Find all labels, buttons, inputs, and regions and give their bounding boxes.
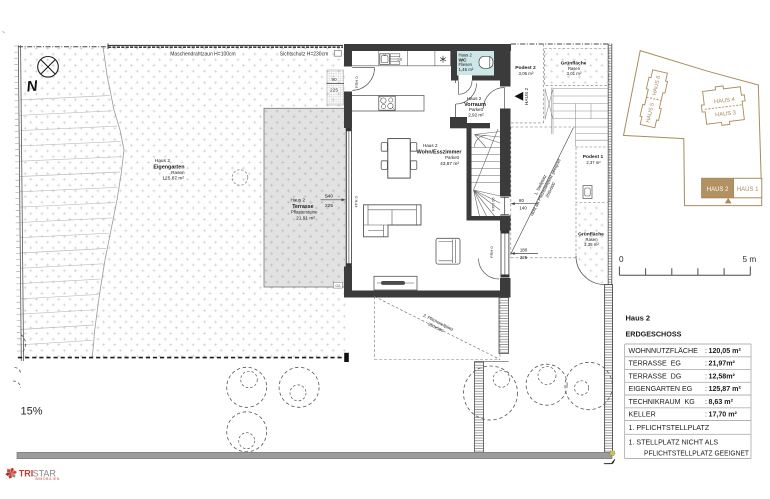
svg-text:2,37 m²: 2,37 m² [586, 160, 601, 165]
svg-text:Haus 2: Haus 2 [155, 158, 171, 164]
svg-text:15%: 15% [21, 405, 43, 417]
svg-text:120,05 m²: 120,05 m² [709, 347, 742, 355]
svg-text:Pflastersteine: Pflastersteine [291, 210, 318, 215]
svg-text::: : [705, 360, 707, 368]
svg-text:225: 225 [520, 255, 528, 260]
svg-text:90: 90 [331, 77, 337, 83]
svg-text:FRH 0: FRH 0 [354, 76, 359, 88]
svg-text:3,35 m²: 3,35 m² [584, 242, 599, 247]
svg-text:2,92 m²: 2,92 m² [468, 113, 484, 118]
svg-text:HAUS 1: HAUS 1 [737, 187, 759, 193]
svg-text:Rasen: Rasen [171, 170, 185, 175]
svg-text:5 m: 5 m [743, 255, 757, 264]
svg-text:180: 180 [520, 248, 528, 253]
svg-text:TERRASSE EG: TERRASSE EG [629, 360, 681, 368]
svg-text:0: 0 [619, 255, 624, 264]
svg-text:Maschendrahtzaun H=100cm: Maschendrahtzaun H=100cm [170, 51, 235, 57]
svg-text:1. STELLPLATZ NICHT ALS: 1. STELLPLATZ NICHT ALS [629, 439, 719, 447]
svg-text::: : [705, 411, 707, 419]
svg-text:WOHNNUTZFLÄCHE: WOHNNUTZFLÄCHE [629, 347, 699, 355]
svg-text:Parkett: Parkett [469, 107, 484, 112]
svg-text:FRH 0: FRH 0 [489, 246, 494, 258]
svg-text:43,87 m²: 43,87 m² [440, 161, 459, 167]
svg-text:12,58m²: 12,58m² [709, 372, 736, 380]
svg-text:IMMOBILIEN: IMMOBILIEN [35, 477, 60, 481]
svg-text:125,87 m²: 125,87 m² [709, 385, 742, 393]
svg-text:TRI: TRI [19, 469, 34, 479]
svg-text:EIGENGARTEN EG: EIGENGARTEN EG [629, 385, 693, 393]
svg-text::: : [705, 347, 707, 355]
svg-text:Haus 2: Haus 2 [459, 52, 473, 57]
svg-text:Sichtschutz H=230cm: Sichtschutz H=230cm [280, 51, 329, 57]
svg-text:Haus 2: Haus 2 [626, 313, 651, 322]
svg-text:ERDGESCHOSS: ERDGESCHOSS [626, 330, 682, 339]
svg-text:GS: GS [397, 56, 403, 61]
svg-text:21,91 m²: 21,91 m² [296, 216, 315, 222]
svg-text::: : [705, 398, 707, 406]
svg-text:225: 225 [325, 203, 333, 209]
svg-text:80: 80 [519, 198, 524, 203]
svg-text:8,63 m²: 8,63 m² [709, 398, 734, 406]
svg-text:3,06 m²: 3,06 m² [519, 71, 534, 76]
svg-text:TECHNIKRAUM KG: TECHNIKRAUM KG [629, 398, 695, 406]
svg-text:GA: GA [335, 284, 341, 288]
svg-text:Haus 2: Haus 2 [290, 198, 305, 203]
svg-text:KELLER: KELLER [629, 411, 656, 419]
svg-text:1,45 m²: 1,45 m² [459, 67, 474, 72]
svg-text:TERRASSE DG: TERRASSE DG [629, 372, 682, 380]
svg-text:1. PFLICHTSTELLPLATZ: 1. PFLICHTSTELLPLATZ [629, 424, 710, 432]
svg-text::: : [705, 385, 707, 393]
svg-text:FPH 0: FPH 0 [354, 195, 359, 207]
svg-text:3,01 m²: 3,01 m² [567, 71, 582, 76]
svg-text:HAUS 2: HAUS 2 [707, 187, 729, 193]
svg-text:540: 540 [325, 193, 333, 199]
svg-text:Haus 2: Haus 2 [423, 143, 438, 148]
svg-text:Rasen: Rasen [585, 237, 598, 242]
svg-text:125,87 m²: 125,87 m² [162, 176, 184, 182]
svg-text:21,97m²: 21,97m² [709, 360, 736, 368]
svg-text:HAUS 2: HAUS 2 [524, 88, 530, 106]
svg-text::: : [705, 372, 707, 380]
svg-text:225: 225 [330, 88, 338, 94]
svg-text:Parkett: Parkett [445, 155, 460, 160]
svg-text:140: 140 [519, 205, 527, 210]
svg-text:17,70 m²: 17,70 m² [709, 411, 738, 419]
svg-text:Haus 2: Haus 2 [467, 96, 482, 101]
svg-text:PFLICHTSTELLPLATZ GEEIGNET: PFLICHTSTELLPLATZ GEEIGNET [644, 449, 750, 457]
